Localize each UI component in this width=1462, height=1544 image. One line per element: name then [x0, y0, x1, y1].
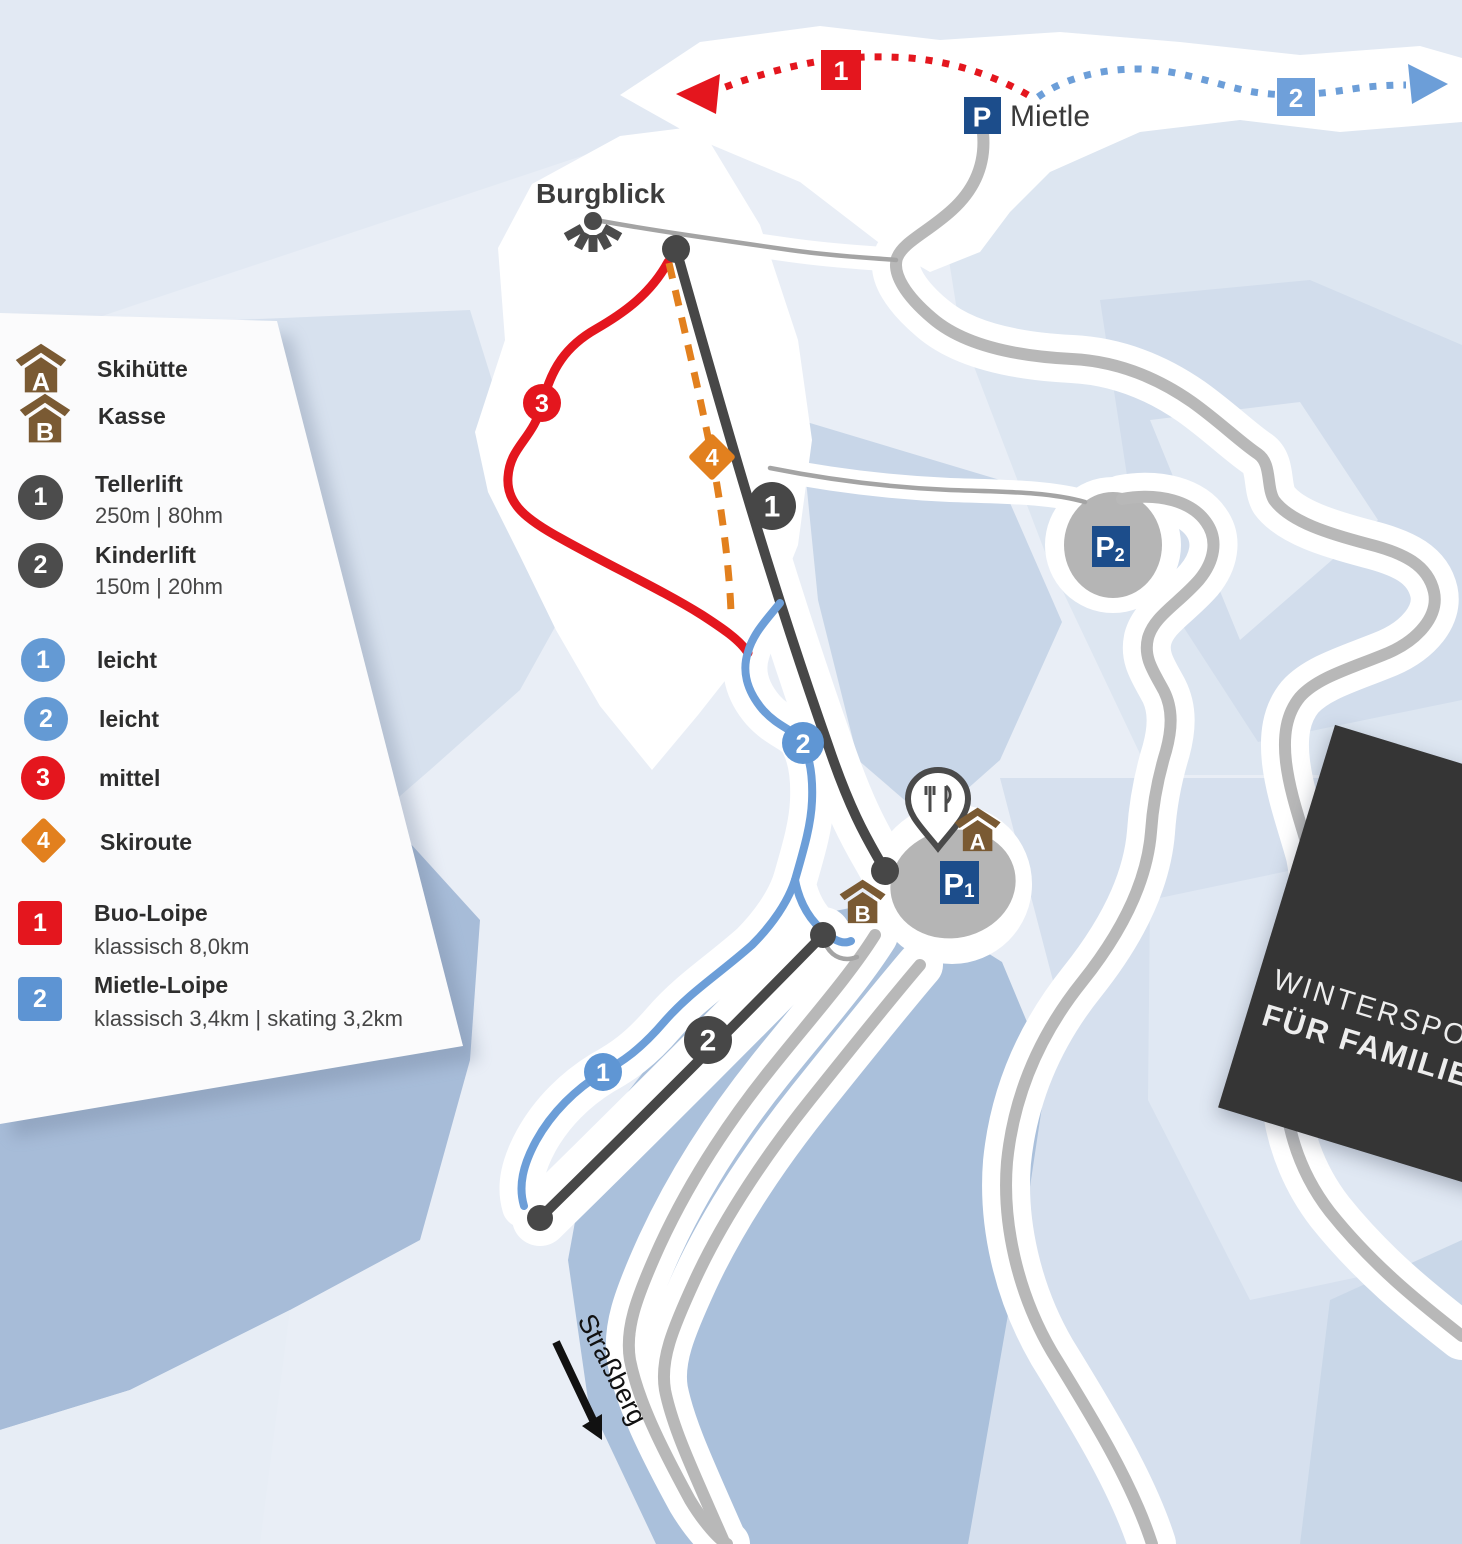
- legend-label-skiroute: Skiroute: [100, 829, 192, 856]
- legend-label-tellerlift: Tellerlift: [95, 471, 183, 498]
- svg-text:P: P: [973, 102, 992, 133]
- legend-badge-loipe2: 2: [18, 977, 62, 1021]
- svg-text:4: 4: [705, 445, 719, 472]
- legend-badge-lift2: 2: [18, 543, 63, 588]
- svg-text:2: 2: [700, 1025, 717, 1058]
- loipe-1-route-badge: 1: [821, 50, 861, 90]
- legend-detail-buo-loipe: klassisch 8,0km: [94, 934, 249, 960]
- parking-p1: P1: [940, 861, 979, 904]
- svg-text:3: 3: [535, 390, 549, 418]
- legend-detail-tellerlift: 250m | 80hm: [95, 503, 223, 529]
- svg-text:1: 1: [833, 56, 848, 86]
- legend-badge-piste1: 1: [21, 638, 65, 682]
- legend-label-piste1: leicht: [97, 647, 157, 674]
- viewpoint-label: Burgblick: [536, 178, 666, 209]
- legend-badge-piste2: 2: [24, 697, 68, 741]
- legend-label-piste2: leicht: [99, 706, 159, 733]
- legend-label-mietle-loipe: Mietle-Loipe: [94, 972, 228, 999]
- svg-text:B: B: [36, 419, 54, 447]
- map-canvas: 1 2 1 2 3 2 1 4 Burgblick: [0, 0, 1462, 1544]
- parking-mietle-label: Mietle: [1010, 100, 1090, 133]
- legend-label-buo-loipe: Buo-Loipe: [94, 900, 208, 927]
- legend-label-kinderlift: Kinderlift: [95, 542, 196, 569]
- ski-map: 1 2 1 2 3 2 1 4 Burgblick: [0, 0, 1462, 1544]
- legend-label-piste3: mittel: [99, 765, 160, 792]
- parking-mietle: P: [964, 97, 1001, 134]
- parking-p2: P2: [1092, 526, 1130, 567]
- loipe-2-route-badge: 2: [1277, 78, 1315, 116]
- svg-text:2: 2: [795, 729, 810, 759]
- svg-text:1: 1: [764, 491, 781, 524]
- legend-badge-lift1: 1: [18, 475, 63, 520]
- legend-detail-kinderlift: 150m | 20hm: [95, 574, 223, 600]
- legend-detail-mietle-loipe: klassisch 3,4km | skating 3,2km: [94, 1006, 403, 1032]
- svg-text:A: A: [970, 830, 986, 855]
- svg-text:B: B: [855, 902, 871, 927]
- legend-badge-piste3: 3: [21, 756, 65, 800]
- legend-badge-loipe1: 1: [18, 901, 62, 945]
- legend-label-skihuette: Skihütte: [97, 356, 188, 383]
- svg-text:2: 2: [1289, 83, 1303, 113]
- svg-text:1: 1: [596, 1059, 610, 1087]
- legend-label-kasse: Kasse: [98, 403, 166, 430]
